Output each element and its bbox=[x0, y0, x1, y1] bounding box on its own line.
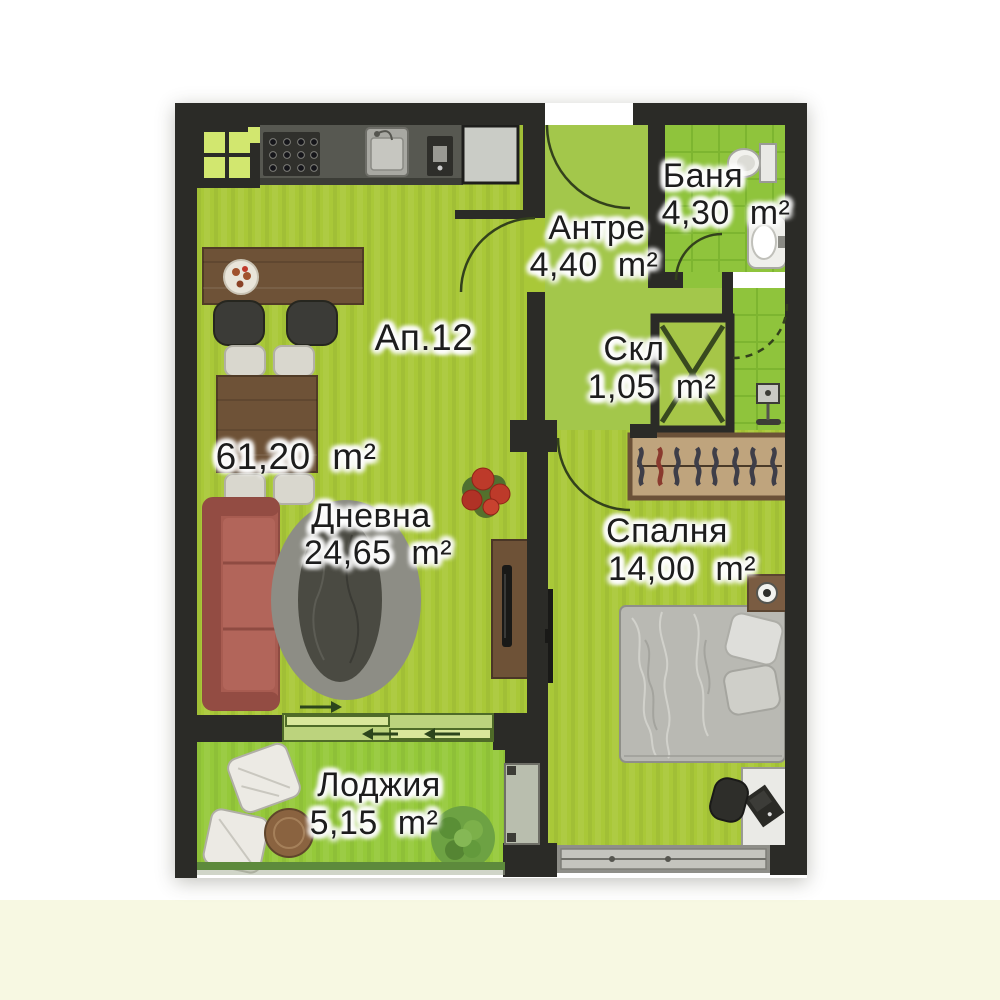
sofa bbox=[203, 498, 279, 710]
loggia-side-window bbox=[505, 764, 539, 844]
kitchen-counter bbox=[260, 125, 518, 185]
bar-counter bbox=[203, 248, 363, 304]
floor-plan-drawing bbox=[0, 0, 1000, 1000]
floor-plan-image: Баня 4,30 m² Антре 4,40 m² Ап.12 Скл 1,0… bbox=[0, 0, 1000, 1000]
room-label-banya: Баня bbox=[663, 159, 743, 195]
bed bbox=[620, 606, 785, 762]
room-label-dnevna: Дневна bbox=[311, 499, 430, 535]
room-area-lodzhiya: 5,15 m² bbox=[310, 806, 439, 842]
room-area-skl: 1,05 m² bbox=[588, 370, 717, 406]
room-area-antre: 4,40 m² bbox=[530, 248, 659, 284]
coffee-machine-icon bbox=[427, 136, 453, 176]
stove-icon bbox=[263, 132, 320, 176]
room-label-antre: Антре bbox=[548, 211, 645, 247]
room-label-skl: Скл bbox=[603, 332, 664, 368]
balcony-table-icon bbox=[265, 809, 313, 857]
tv-icon bbox=[502, 565, 512, 647]
loggia-railing bbox=[197, 862, 505, 875]
room-area-dnevna: 24,65 m² bbox=[304, 536, 452, 572]
refrigerator-icon bbox=[463, 126, 518, 183]
apartment-number-label: Ап.12 bbox=[375, 319, 474, 358]
bedroom-window bbox=[557, 845, 770, 873]
desk bbox=[742, 768, 786, 846]
wardrobe-with-hangers bbox=[630, 435, 788, 498]
bush-icon bbox=[431, 806, 495, 870]
room-label-lodzhiya: Лоджия bbox=[317, 768, 440, 804]
room-area-spalnya: 14,00 m² bbox=[608, 552, 756, 588]
serving-plate-icon bbox=[224, 260, 258, 294]
room-label-spalnya: Спалня bbox=[606, 514, 728, 550]
kitchen-sink-icon bbox=[366, 128, 408, 176]
corner-window-icon bbox=[197, 125, 260, 188]
room-area-banya: 4,30 m² bbox=[662, 196, 791, 232]
total-area-label: 61,20 m² bbox=[216, 438, 377, 477]
tv-cabinet bbox=[492, 540, 528, 678]
